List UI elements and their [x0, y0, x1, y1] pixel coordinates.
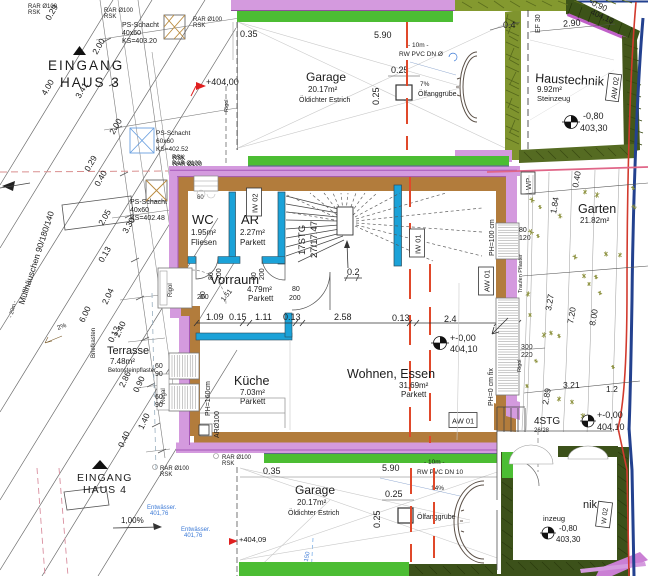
svg-text:31,69m²: 31,69m²	[399, 381, 429, 390]
svg-text:Briefkasten: Briefkasten	[91, 328, 97, 358]
svg-text:90: 90	[155, 402, 163, 409]
svg-text:IW 02: IW 02	[251, 193, 260, 213]
svg-text:Wohnen, Essen: Wohnen, Essen	[347, 367, 435, 381]
svg-text:PS-Schacht: PS-Schacht	[156, 130, 191, 137]
svg-text:HAUS 4: HAUS 4	[83, 484, 127, 496]
svg-text:40x60: 40x60	[130, 207, 149, 214]
svg-text:60x60: 60x60	[156, 138, 174, 145]
svg-text:RW PVC DN 10: RW PVC DN 10	[417, 469, 463, 476]
svg-text:Öldichter Estrich: Öldichter Estrich	[288, 509, 339, 517]
svg-text:KS=403.20: KS=403.20	[122, 38, 157, 45]
svg-text:PS-Schacht: PS-Schacht	[130, 199, 167, 206]
svg-text:Terrasse: Terrasse	[107, 345, 149, 357]
svg-text:27/17.47: 27/17.47	[309, 221, 320, 258]
svg-text:Steinzeug: Steinzeug	[537, 94, 570, 103]
svg-text:- 10m -: - 10m -	[408, 42, 429, 49]
svg-text:Garage: Garage	[295, 483, 335, 497]
svg-text:Parkett: Parkett	[248, 294, 274, 303]
svg-text:RSK: RSK	[28, 10, 40, 16]
svg-text:Ölfanggrube: Ölfanggrube	[417, 513, 456, 521]
svg-text:Rigol: Rigol	[168, 283, 174, 297]
svg-text:Parkett: Parkett	[401, 390, 427, 399]
svg-text:5.90: 5.90	[374, 30, 392, 40]
svg-text:inzeug: inzeug	[543, 514, 565, 523]
svg-text:Garten: Garten	[578, 202, 616, 216]
svg-text:2.27m²: 2.27m²	[240, 228, 265, 237]
svg-text:Rigol: Rigol	[224, 99, 230, 112]
svg-text:KS=402.52: KS=402.52	[156, 146, 189, 153]
svg-text:RW PVC DN Ø: RW PVC DN Ø	[399, 51, 443, 58]
svg-text:EINGANG: EINGANG	[48, 58, 124, 73]
svg-text:KS=402.48: KS=402.48	[130, 215, 165, 222]
svg-text:AW 01: AW 01	[483, 270, 492, 292]
svg-text:200: 200	[197, 294, 209, 301]
svg-text:9.92m²: 9.92m²	[537, 85, 562, 94]
svg-text:Küche: Küche	[234, 374, 269, 388]
svg-text:3.21: 3.21	[563, 380, 580, 390]
svg-text:IW 01: IW 01	[414, 234, 423, 254]
svg-text:17STG: 17STG	[297, 225, 308, 255]
svg-text:RSK: RSK	[104, 14, 116, 20]
svg-text:2.4: 2.4	[444, 314, 457, 324]
svg-text:80: 80	[519, 227, 527, 234]
svg-text:Rigol: Rigol	[517, 359, 523, 372]
svg-text:200: 200	[259, 268, 266, 280]
svg-text:0.15: 0.15	[229, 312, 247, 322]
svg-text:80: 80	[292, 286, 300, 293]
svg-text:80: 80	[251, 272, 258, 280]
svg-text:404,10: 404,10	[597, 422, 625, 432]
svg-text:0.35: 0.35	[240, 29, 258, 39]
svg-text:AW 01: AW 01	[452, 417, 474, 426]
svg-text:2.58: 2.58	[334, 312, 352, 322]
svg-text:4.79m²: 4.79m²	[247, 285, 272, 294]
svg-text:ARØ100: ARØ100	[214, 411, 221, 438]
svg-text:404,10: 404,10	[450, 344, 478, 354]
svg-text:+-0,00: +-0,00	[450, 333, 476, 343]
svg-text:EINGANG: EINGANG	[77, 472, 132, 484]
svg-text:+404,09: +404,09	[239, 535, 266, 544]
svg-text:+404,00: +404,00	[206, 77, 239, 87]
svg-text:0.35: 0.35	[263, 466, 281, 476]
svg-text:PH=0 cm fix: PH=0 cm fix	[488, 368, 495, 406]
svg-text:21.82m²: 21.82m²	[580, 216, 610, 225]
svg-text:Parkett: Parkett	[240, 238, 266, 247]
svg-text:0.13: 0.13	[283, 312, 301, 322]
svg-text:120: 120	[519, 235, 531, 242]
svg-text:RAR Ø100: RAR Ø100	[172, 161, 202, 167]
svg-text:40x60: 40x60	[122, 30, 141, 37]
svg-text:Fliesen: Fliesen	[191, 238, 217, 247]
svg-text:Garage: Garage	[306, 70, 346, 84]
svg-text:403,30: 403,30	[556, 535, 581, 544]
svg-text:1.09: 1.09	[206, 312, 224, 322]
svg-text:-0,80: -0,80	[559, 524, 578, 533]
svg-text:7%: 7%	[420, 81, 430, 88]
svg-text:401,76: 401,76	[150, 511, 169, 517]
svg-text:PH=160cm: PH=160cm	[205, 381, 212, 416]
svg-text:220: 220	[521, 352, 533, 359]
svg-text:1,00%: 1,00%	[121, 516, 144, 525]
svg-text:EF 30: EF 30	[535, 14, 542, 33]
svg-text:RSK: RSK	[222, 461, 234, 467]
svg-text:Traufen Pflaster: Traufen Pflaster	[518, 254, 524, 293]
svg-text:0.25: 0.25	[385, 489, 403, 499]
svg-text:20.17m²: 20.17m²	[297, 498, 327, 507]
svg-text:-0,80: -0,80	[583, 111, 604, 121]
svg-text:200: 200	[216, 268, 223, 280]
svg-text:90: 90	[155, 371, 163, 378]
svg-text:HAUS 3: HAUS 3	[60, 75, 121, 90]
svg-text:RSK: RSK	[160, 472, 172, 478]
svg-text:200: 200	[289, 295, 301, 302]
svg-text:PH=100 cm: PH=100 cm	[489, 219, 496, 256]
svg-text:1.2: 1.2	[606, 384, 618, 394]
svg-text:WC: WC	[192, 212, 214, 227]
svg-text:- 10m -: - 10m -	[424, 459, 445, 466]
svg-text:2.90: 2.90	[563, 17, 581, 28]
svg-text:WP: WP	[524, 178, 533, 190]
svg-text:RSK: RSK	[193, 23, 205, 29]
svg-text:0.25: 0.25	[391, 65, 409, 75]
svg-text:403,30: 403,30	[580, 123, 608, 133]
svg-text:5.90: 5.90	[382, 463, 400, 473]
svg-text:7.03m²: 7.03m²	[240, 388, 265, 397]
svg-text:1.11: 1.11	[255, 312, 272, 322]
svg-text:7.48m²: 7.48m²	[110, 357, 135, 366]
svg-text:4STG: 4STG	[534, 416, 560, 427]
svg-text:PS-Schacht: PS-Schacht	[122, 22, 159, 29]
svg-text:20.17m²: 20.17m²	[308, 85, 338, 94]
svg-text:60: 60	[155, 363, 163, 370]
svg-text:1.95m²: 1.95m²	[191, 228, 216, 237]
svg-text:401,76: 401,76	[184, 533, 203, 539]
svg-text:0.13: 0.13	[392, 313, 410, 323]
svg-text:Betonsteinpflaster: Betonsteinpflaster	[108, 368, 156, 374]
svg-text:Ölfanggrube: Ölfanggrube	[418, 90, 457, 98]
svg-text:+-0,00: +-0,00	[597, 410, 623, 420]
svg-text:Öldichter Estrich: Öldichter Estrich	[299, 96, 350, 104]
svg-text:0.25: 0.25	[371, 87, 381, 105]
svg-text:60: 60	[155, 394, 163, 401]
svg-text:0.2: 0.2	[347, 267, 360, 277]
svg-text:nik: nik	[583, 499, 598, 511]
svg-text:0.25: 0.25	[372, 510, 382, 528]
